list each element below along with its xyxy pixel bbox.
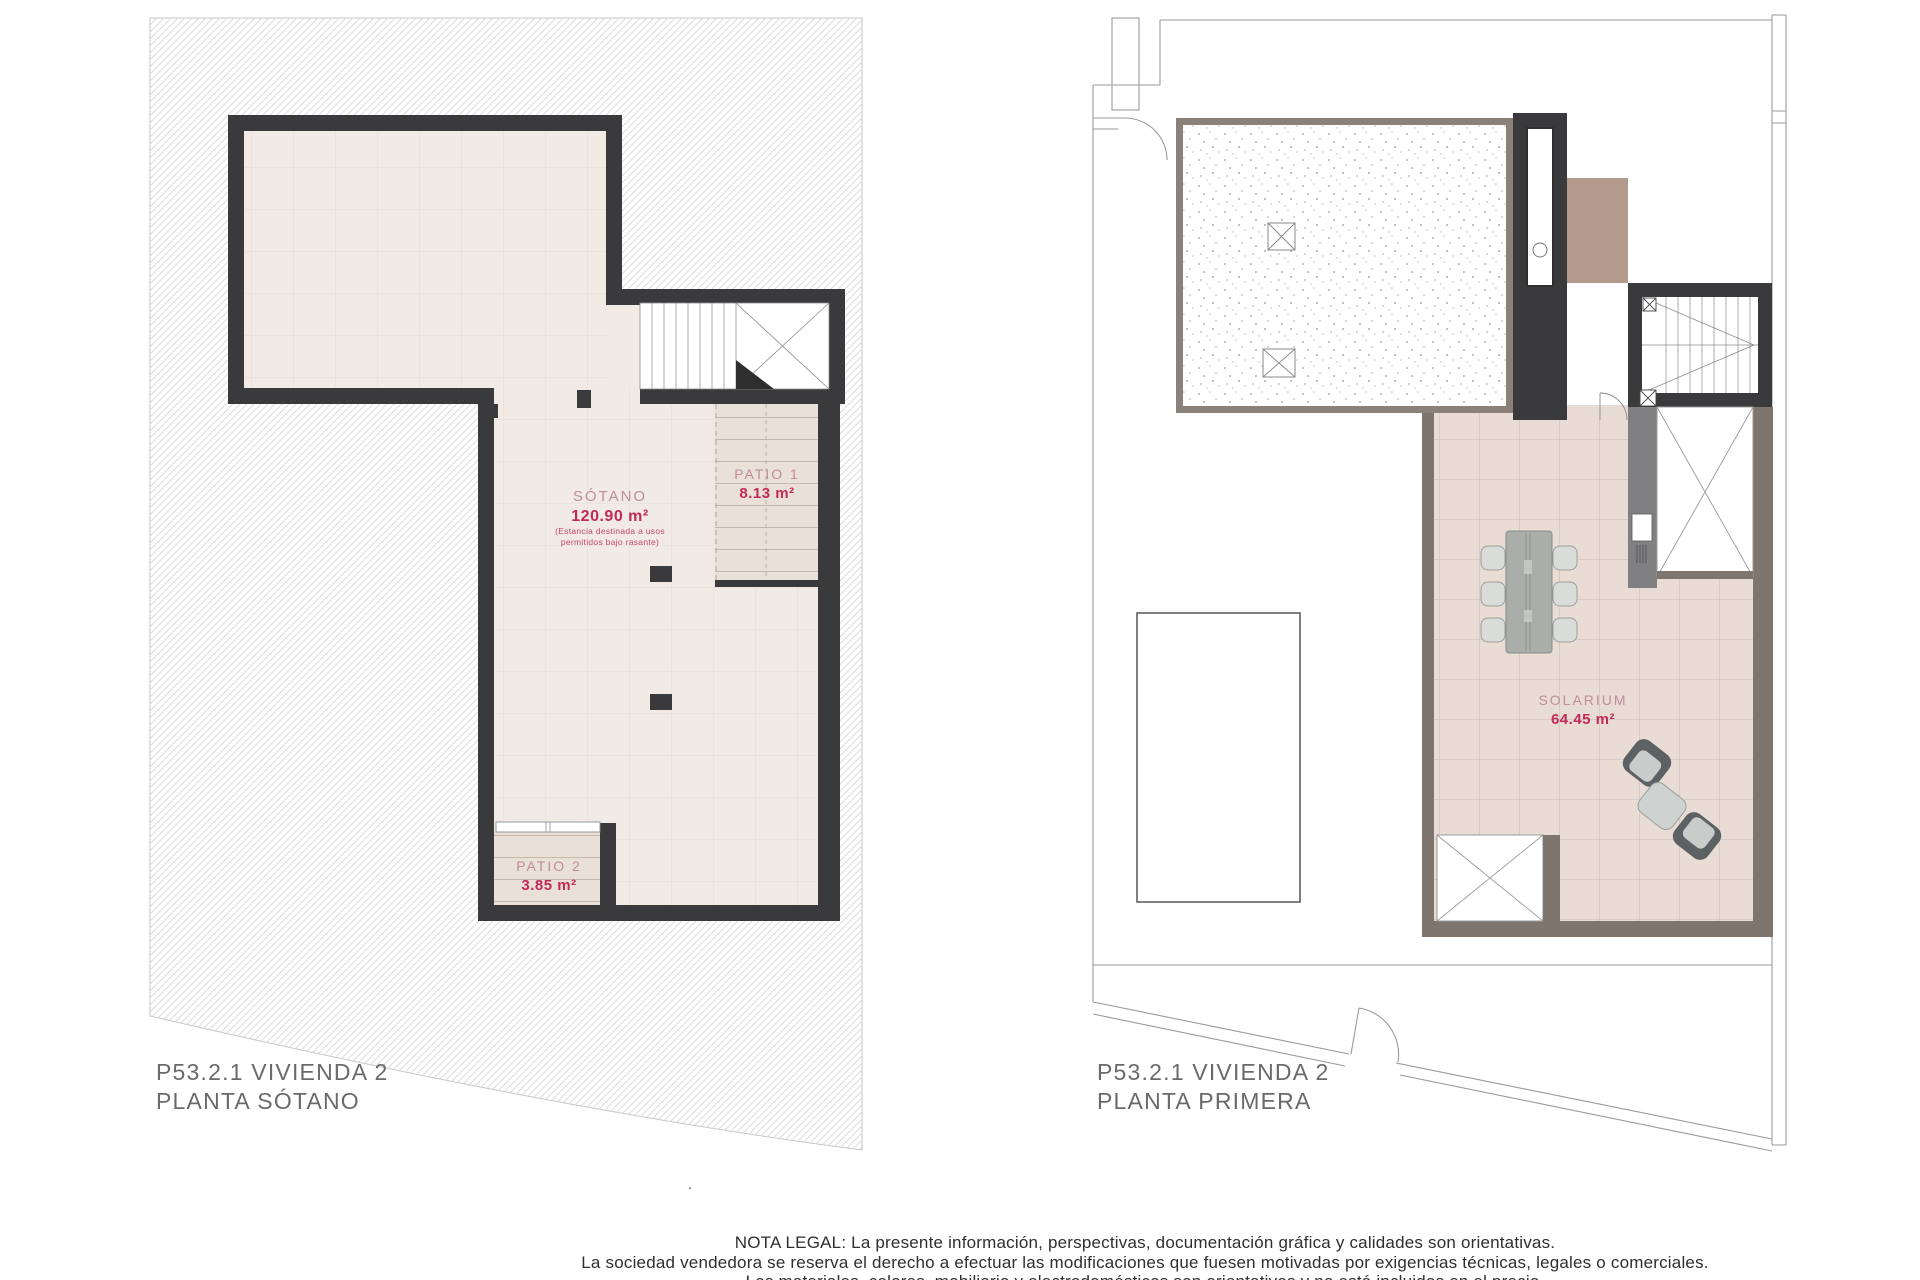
shaft-circle [1533, 243, 1547, 257]
caption-line2: PLANTA SÓTANO [156, 1087, 389, 1116]
right-plan-caption: P53.2.1 VIVIENDA 2 PLANTA PRIMERA [1097, 1058, 1330, 1116]
solarium-wall-left [1422, 413, 1434, 937]
column [650, 566, 672, 582]
shaft [1527, 128, 1553, 286]
dining-chair [1553, 582, 1577, 606]
patio2-area [494, 822, 616, 905]
dining-chair [1553, 618, 1577, 642]
chimney-block [1567, 178, 1628, 283]
dining-set [1481, 531, 1577, 653]
dining-chair [1553, 546, 1577, 570]
gate-leaf [1351, 1008, 1359, 1054]
dining-chair [1481, 618, 1505, 642]
patio-skylight [1437, 835, 1560, 921]
gravel-roof [1176, 118, 1513, 413]
counter-bar [1628, 407, 1657, 588]
page-dot: . [688, 1176, 692, 1193]
solarium-wall-bottom [1422, 921, 1773, 937]
solarium-wall-right [1753, 407, 1773, 937]
patio2-window [496, 822, 600, 832]
gate-arc [1359, 1008, 1399, 1062]
dining-chair [1481, 582, 1505, 606]
stair-core [1513, 113, 1567, 420]
floorplan-page: SÓTANO 120.90 m² (Estancia destinada a u… [0, 0, 1920, 1280]
entry-pillar [1112, 18, 1139, 110]
boundary-wall-right [1772, 15, 1786, 1145]
column [577, 390, 591, 408]
wall-step [478, 404, 498, 418]
caption-line2: PLANTA PRIMERA [1097, 1087, 1330, 1116]
entry-gate-arc [1125, 118, 1167, 160]
legal-line1: NOTA LEGAL: La presente información, per… [560, 1233, 1730, 1253]
appliance [1632, 514, 1652, 541]
dining-chair [1481, 546, 1505, 570]
caption-line1: P53.2.1 VIVIENDA 2 [1097, 1058, 1330, 1087]
left-plan-caption: P53.2.1 VIVIENDA 2 PLANTA SÓTANO [156, 1058, 389, 1116]
legal-line2: La sociedad vendedora se reserva el dere… [560, 1253, 1730, 1273]
legal-note: NOTA LEGAL: La presente información, per… [560, 1233, 1730, 1280]
legal-line3: Los materiales, colores, mobiliario y el… [560, 1272, 1730, 1280]
caption-line1: P53.2.1 VIVIENDA 2 [156, 1058, 389, 1087]
basement-stair [640, 303, 829, 389]
first-floor-stair [1600, 283, 1772, 420]
table-detail [1524, 560, 1532, 574]
dining-table [1506, 531, 1552, 653]
column [650, 694, 672, 710]
pool [1137, 613, 1300, 902]
patio1-area [715, 404, 818, 587]
stair-void-skylight [1657, 407, 1753, 579]
table-detail [1524, 610, 1532, 622]
